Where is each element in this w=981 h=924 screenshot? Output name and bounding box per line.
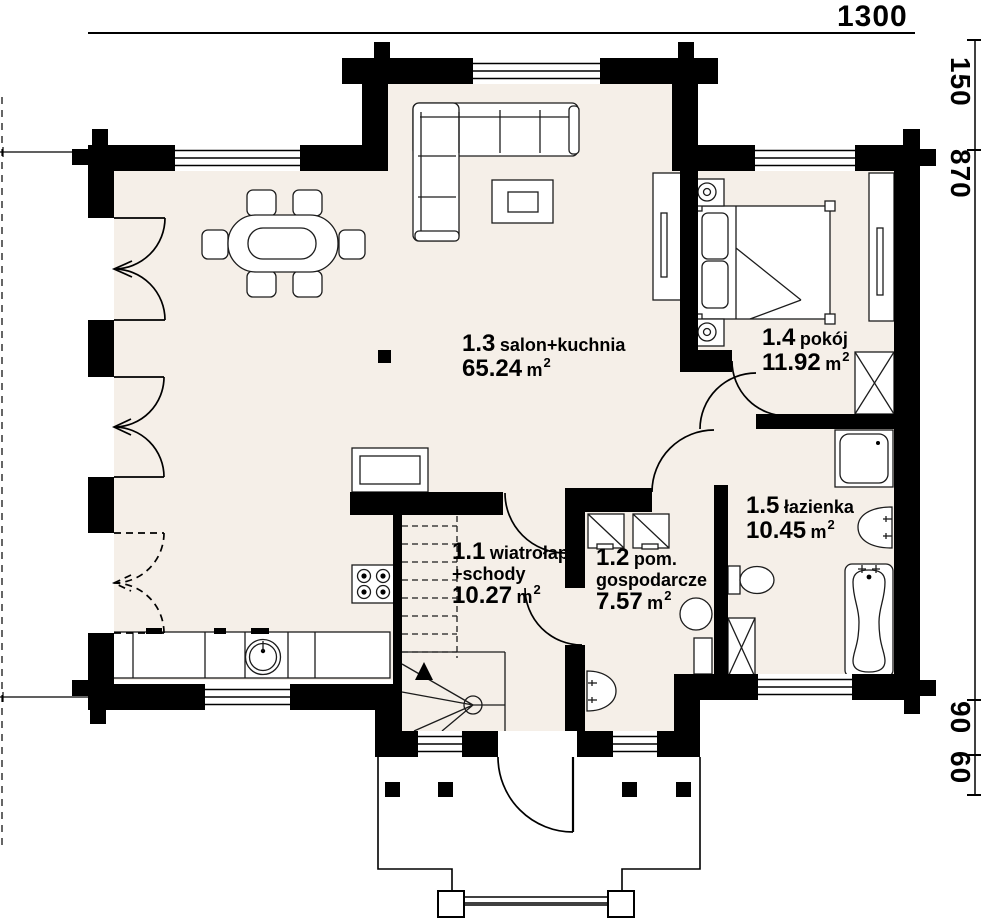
room-number: 1.1 bbox=[452, 538, 485, 565]
floor-plan-canvas bbox=[0, 0, 981, 924]
room-label-1-2: 1.2 pom. gospodarcze 7.57 m2 bbox=[596, 546, 707, 615]
room-number: 1.3 bbox=[462, 330, 495, 357]
room-name: pokój bbox=[800, 329, 848, 349]
area-unit: m bbox=[825, 354, 841, 374]
dimension-right-870: 870 bbox=[944, 149, 976, 199]
bathtub bbox=[845, 564, 893, 677]
room-name: wiatrołap bbox=[490, 543, 569, 563]
shower bbox=[835, 430, 893, 487]
room-name: łazienka bbox=[784, 497, 854, 517]
room-area: 65.24 bbox=[462, 355, 522, 382]
room-label-1-3: 1.3 salon+kuchnia 65.24 m2 bbox=[462, 332, 625, 382]
stove bbox=[352, 565, 395, 603]
salon-cabinet bbox=[653, 173, 682, 300]
room-area: 10.45 bbox=[746, 517, 806, 544]
room-number: 1.4 bbox=[762, 324, 795, 351]
structural-post bbox=[378, 350, 391, 363]
toilet bbox=[728, 566, 774, 594]
room-name: salon+kuchnia bbox=[500, 335, 626, 355]
kitchen-counter-sink bbox=[95, 628, 390, 678]
kitchen-island bbox=[352, 448, 428, 492]
area-unit: m bbox=[647, 593, 663, 613]
utility-cabinet bbox=[694, 638, 712, 674]
room-area: 10.27 bbox=[452, 582, 512, 609]
room-area: 11.92 bbox=[762, 349, 821, 376]
area-unit-sup: 2 bbox=[534, 582, 541, 597]
room-number: 1.2 bbox=[596, 544, 629, 571]
area-unit-sup: 2 bbox=[544, 355, 551, 370]
dimension-right-150: 150 bbox=[944, 57, 976, 107]
room-name: pom. bbox=[634, 549, 677, 569]
dimension-right-60: 60 bbox=[944, 751, 976, 784]
chimney-shaft-bathroom bbox=[728, 618, 755, 677]
porch bbox=[378, 757, 700, 917]
floor-plan-page: 1.1 wiatrołap +schody 10.27 m2 1.2 pom. … bbox=[0, 0, 981, 924]
room-label-1-5: 1.5 łazienka 10.45 m2 bbox=[746, 494, 854, 544]
area-unit: m bbox=[517, 587, 533, 607]
wardrobe bbox=[869, 173, 894, 321]
double-bed bbox=[692, 201, 835, 324]
coffee-table bbox=[492, 180, 553, 223]
room-label-1-1: 1.1 wiatrołap +schody 10.27 m2 bbox=[452, 540, 569, 609]
room-number: 1.5 bbox=[746, 492, 779, 519]
area-unit: m bbox=[811, 522, 827, 542]
area-unit-sup: 2 bbox=[664, 588, 671, 603]
room-area: 7.57 bbox=[596, 588, 643, 615]
room-label-1-4: 1.4 pokój 11.92 m2 bbox=[762, 326, 849, 376]
dimension-width-total: 1300 bbox=[837, 0, 908, 34]
area-unit: m bbox=[527, 360, 543, 380]
area-unit-sup: 2 bbox=[828, 517, 835, 532]
chimney-shaft-bedroom bbox=[855, 352, 894, 414]
dimension-right-90: 90 bbox=[944, 701, 976, 734]
area-unit-sup: 2 bbox=[842, 349, 849, 364]
porch-columns bbox=[385, 782, 691, 797]
